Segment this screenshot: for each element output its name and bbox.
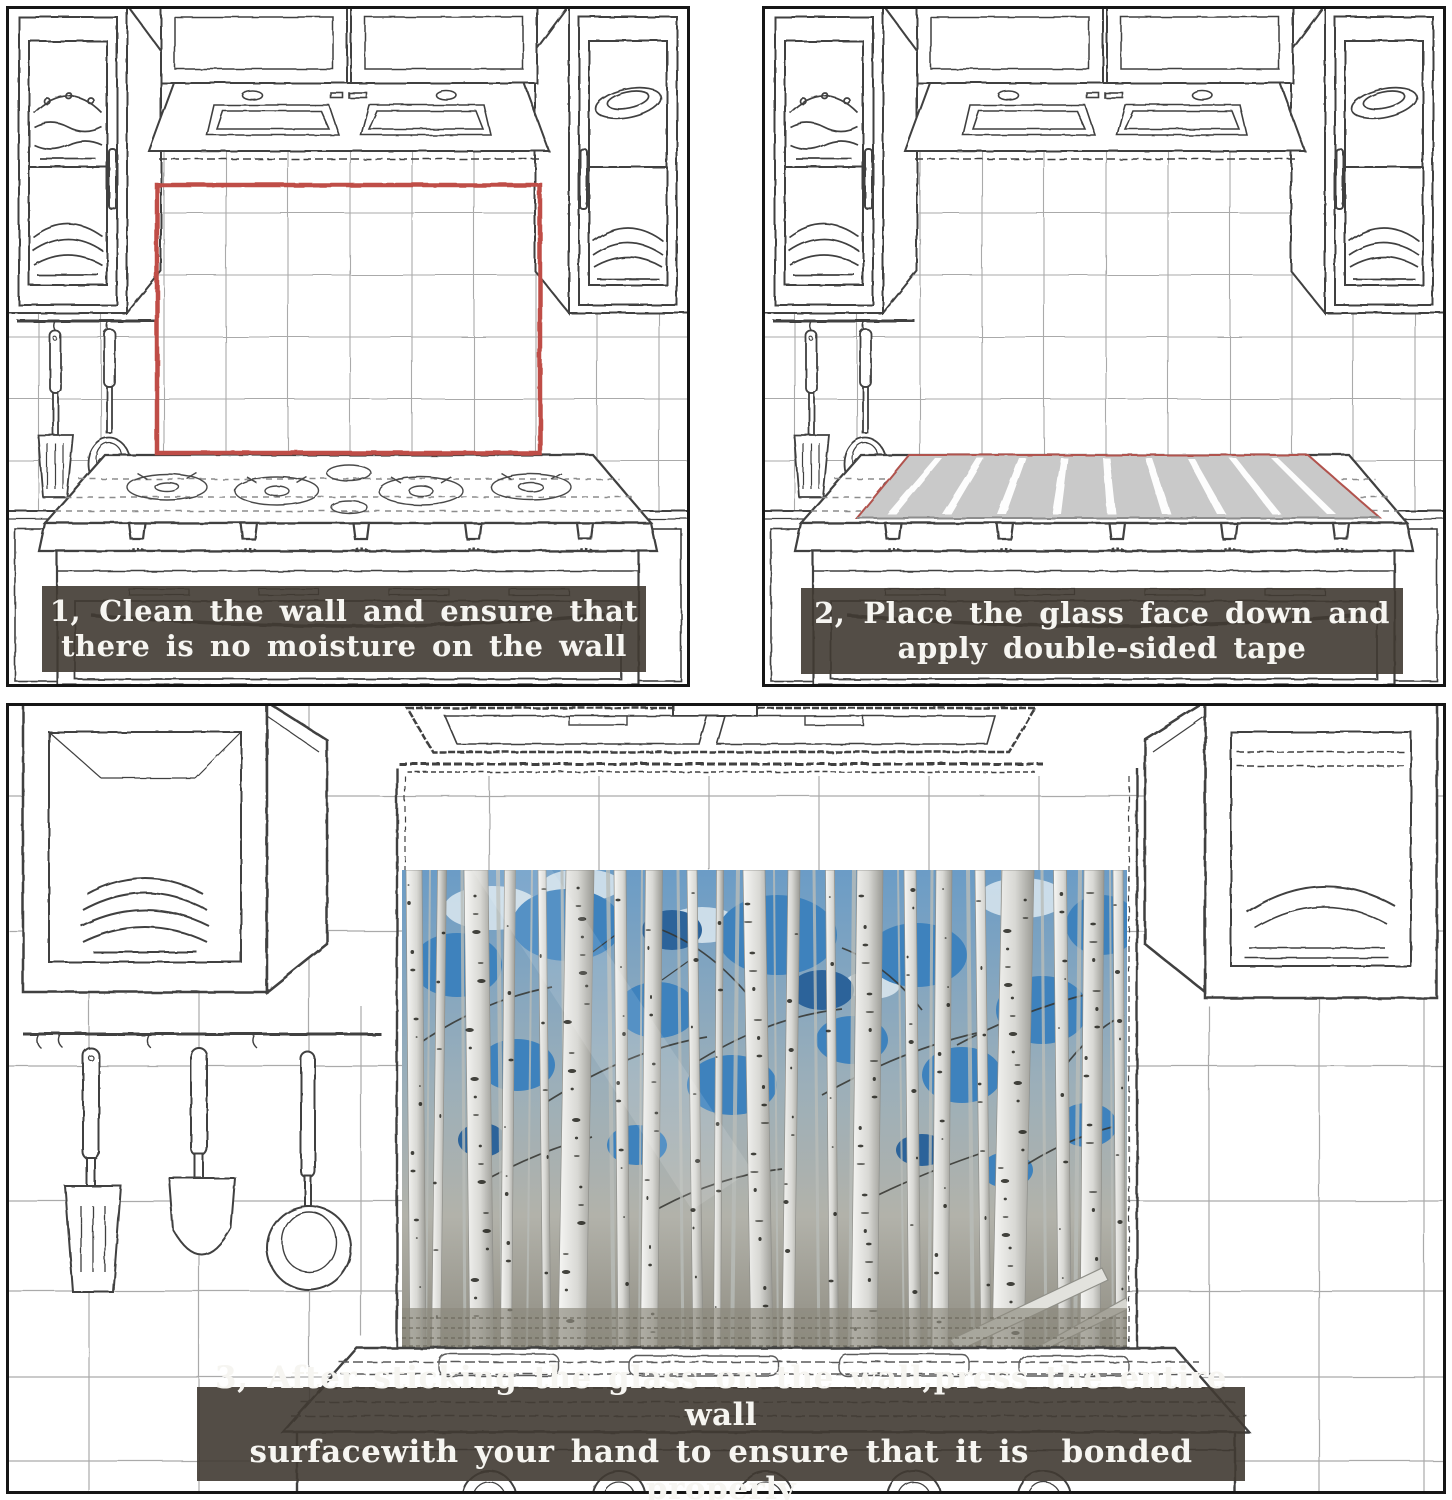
- step1-panel: 1, Clean the wall and ensure that there …: [6, 6, 690, 687]
- step3-panel: 3, After sticking the glass on the wall,…: [6, 703, 1446, 1494]
- step1-caption-line2: there is no moisture on the wall: [42, 629, 646, 664]
- step1-number: 1,: [50, 594, 96, 628]
- range-hood-bottom: [395, 706, 1047, 772]
- step2-number: 2,: [814, 596, 860, 630]
- step3-caption-line1: 3, After sticking the glass on the wall,…: [197, 1360, 1245, 1434]
- step1-sketch: [9, 9, 687, 684]
- step3-caption-line2: surfacewith your hand to ensure that it …: [197, 1434, 1245, 1500]
- open-cabinet-left: [23, 706, 327, 992]
- forest-ground: [402, 1308, 1127, 1351]
- marking-outline: [157, 185, 540, 453]
- step1-caption: 1, Clean the wall and ensure that there …: [42, 586, 646, 672]
- step2-caption-line1: 2, Place the glass face down and: [801, 596, 1403, 631]
- glass-panel-face-down: [857, 455, 1380, 518]
- step3-number: 3,: [215, 1360, 264, 1396]
- step1-caption-line1: 1, Clean the wall and ensure that: [42, 594, 646, 629]
- backsplash-photo: [402, 869, 1138, 1351]
- step2-caption: 2, Place the glass face down and apply d…: [801, 588, 1403, 674]
- step2-panel: 2, Place the glass face down and apply d…: [762, 6, 1446, 687]
- step2-caption-line2: apply double-sided tape: [801, 631, 1403, 666]
- open-cabinet-right: [1145, 706, 1437, 998]
- utensils: [23, 1034, 381, 1292]
- instruction-sheet: 1, Clean the wall and ensure that there …: [0, 0, 1452, 1500]
- step3-caption: 3, After sticking the glass on the wall,…: [197, 1387, 1245, 1481]
- step2-sketch: [765, 9, 1443, 684]
